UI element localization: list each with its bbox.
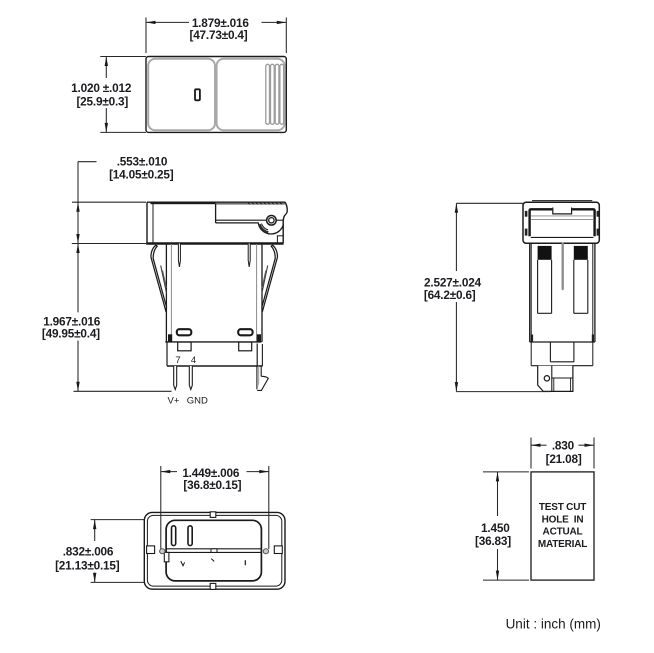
- svg-text:[49.95±0.4]: [49.95±0.4]: [42, 327, 100, 341]
- svg-text:[21.08]: [21.08]: [546, 452, 582, 466]
- svg-text:ACTUAL: ACTUAL: [543, 527, 583, 538]
- svg-text:HOLE IN: HOLE IN: [542, 514, 584, 525]
- svg-text:.832±.006: .832±.006: [63, 544, 114, 558]
- svg-text:[36.8±0.15]: [36.8±0.15]: [183, 478, 241, 492]
- svg-text:[25.9±0.3]: [25.9±0.3]: [76, 94, 128, 108]
- svg-text:.830: .830: [552, 439, 575, 453]
- svg-text:[36.83]: [36.83]: [475, 534, 511, 548]
- svg-text:[14.05±0.25]: [14.05±0.25]: [109, 167, 174, 181]
- svg-text:TEST CUT: TEST CUT: [539, 502, 586, 513]
- svg-text:GND: GND: [187, 395, 208, 406]
- svg-text:[21.13±0.15]: [21.13±0.15]: [55, 558, 120, 572]
- svg-text:MATERIAL: MATERIAL: [538, 539, 587, 550]
- svg-text:Unit : inch (mm): Unit : inch (mm): [506, 617, 601, 632]
- svg-text:.553±.010: .553±.010: [117, 154, 168, 168]
- svg-text:4: 4: [191, 355, 196, 366]
- svg-text:7: 7: [175, 355, 180, 366]
- svg-text:1.020 ±.012: 1.020 ±.012: [71, 81, 132, 95]
- svg-text:[47.73±0.4]: [47.73±0.4]: [189, 28, 247, 42]
- svg-text:V+: V+: [168, 395, 180, 406]
- svg-text:[64.2±0.6]: [64.2±0.6]: [424, 288, 476, 302]
